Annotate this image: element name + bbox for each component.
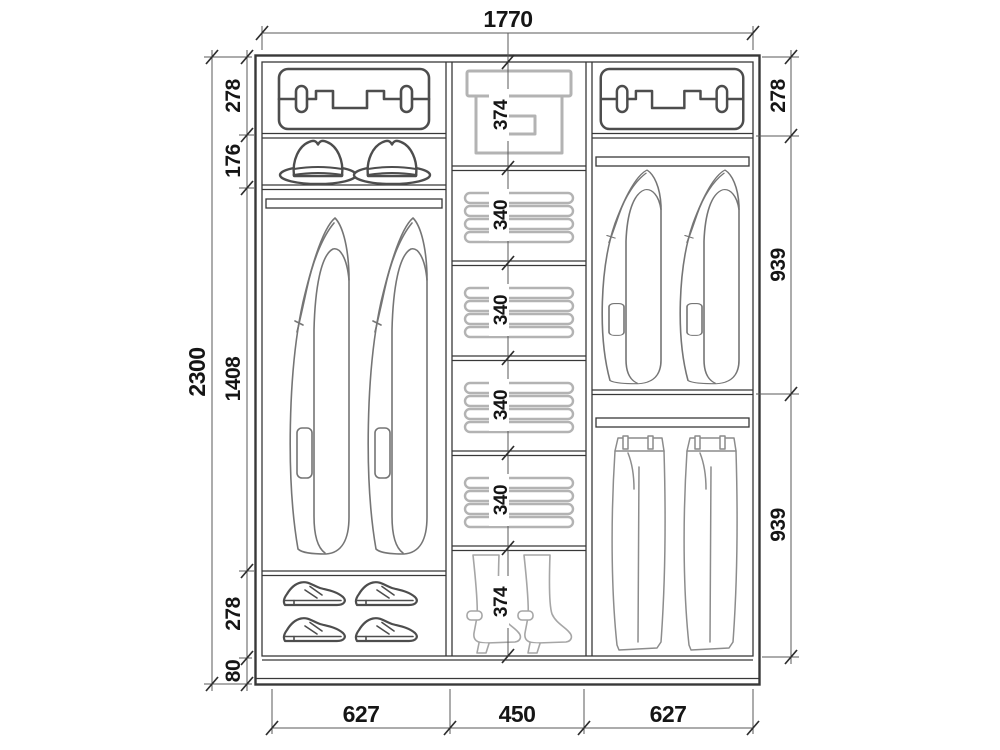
trousers-icon	[612, 436, 665, 650]
hat-icon	[354, 141, 430, 184]
jacket-icon	[368, 218, 427, 554]
boot-icon	[518, 555, 571, 653]
suitcase-icon	[279, 69, 429, 129]
shoe-icon	[356, 618, 417, 641]
dim-right-upper: 939	[767, 248, 790, 282]
wardrobe-dimension-diagram: 1770 627 450 627 2300 278 176 1408 278 8…	[0, 0, 1000, 750]
dim-right-column-width: 627	[650, 701, 687, 727]
jacket-icon	[602, 170, 661, 384]
dim-mid-shelf-2: 340	[491, 295, 512, 325]
dim-left-hats: 176	[222, 144, 245, 178]
shelf-lines	[452, 166, 586, 551]
dim-left-hanging: 1408	[222, 356, 245, 402]
dim-right-suitcase: 278	[767, 78, 790, 112]
diagram-canvas: 1770 627 450 627 2300 278 176 1408 278 8…	[0, 0, 1000, 750]
hanging-rod	[266, 199, 442, 208]
dim-left-shoes: 278	[222, 596, 245, 630]
dim-mid-boots: 374	[491, 586, 512, 617]
jacket-icon	[290, 218, 349, 554]
hanging-rod	[596, 418, 749, 427]
left-column	[262, 69, 446, 641]
dim-left-column-width: 627	[343, 701, 380, 727]
hat-icon	[280, 141, 356, 184]
right-column	[592, 69, 753, 650]
hanging-rod	[596, 157, 749, 166]
dim-mid-shelf-3: 340	[491, 390, 512, 420]
dim-right-lower: 939	[767, 508, 790, 542]
folded-clothes-icon	[465, 193, 573, 242]
dim-mid-shelf-4: 340	[491, 485, 512, 515]
folded-clothes-icon	[465, 383, 573, 432]
shoe-icon	[284, 618, 345, 641]
shoe-icon	[284, 582, 345, 605]
jacket-icon	[680, 170, 739, 384]
dim-middle-column-width: 450	[499, 701, 536, 727]
storage-box-icon	[467, 71, 571, 153]
dim-total-height: 2300	[184, 347, 210, 396]
suitcase-icon	[601, 69, 744, 129]
dim-mid-shelf-1: 340	[491, 200, 512, 230]
folded-clothes-icon	[465, 478, 573, 527]
dim-left-suitcase: 278	[222, 78, 245, 112]
trousers-icon	[684, 436, 737, 650]
dim-mid-box: 374	[491, 99, 512, 130]
middle-column	[452, 71, 586, 653]
folded-clothes-icon	[465, 288, 573, 337]
dim-left-plinth: 80	[222, 660, 245, 682]
dim-total-width: 1770	[483, 6, 532, 32]
shoe-icon	[356, 582, 417, 605]
